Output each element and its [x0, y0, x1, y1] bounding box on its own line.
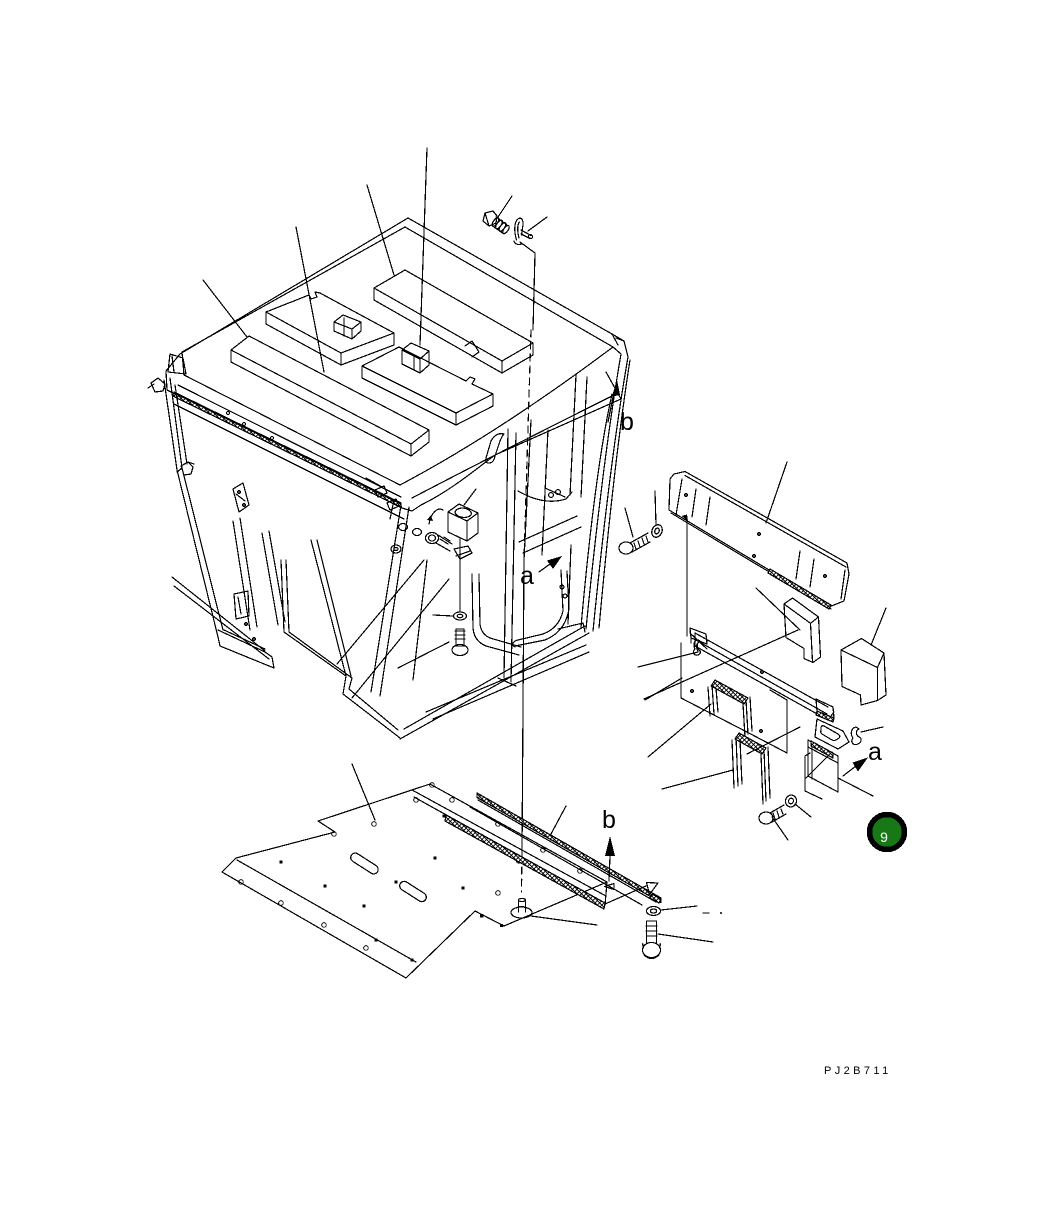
svg-text:a: a — [520, 562, 534, 590]
svg-text:b: b — [602, 806, 616, 834]
svg-text:b: b — [620, 408, 634, 436]
svg-text:PJ2B711: PJ2B711 — [824, 1065, 892, 1077]
svg-text:9: 9 — [880, 829, 888, 845]
svg-text:a: a — [868, 738, 882, 766]
